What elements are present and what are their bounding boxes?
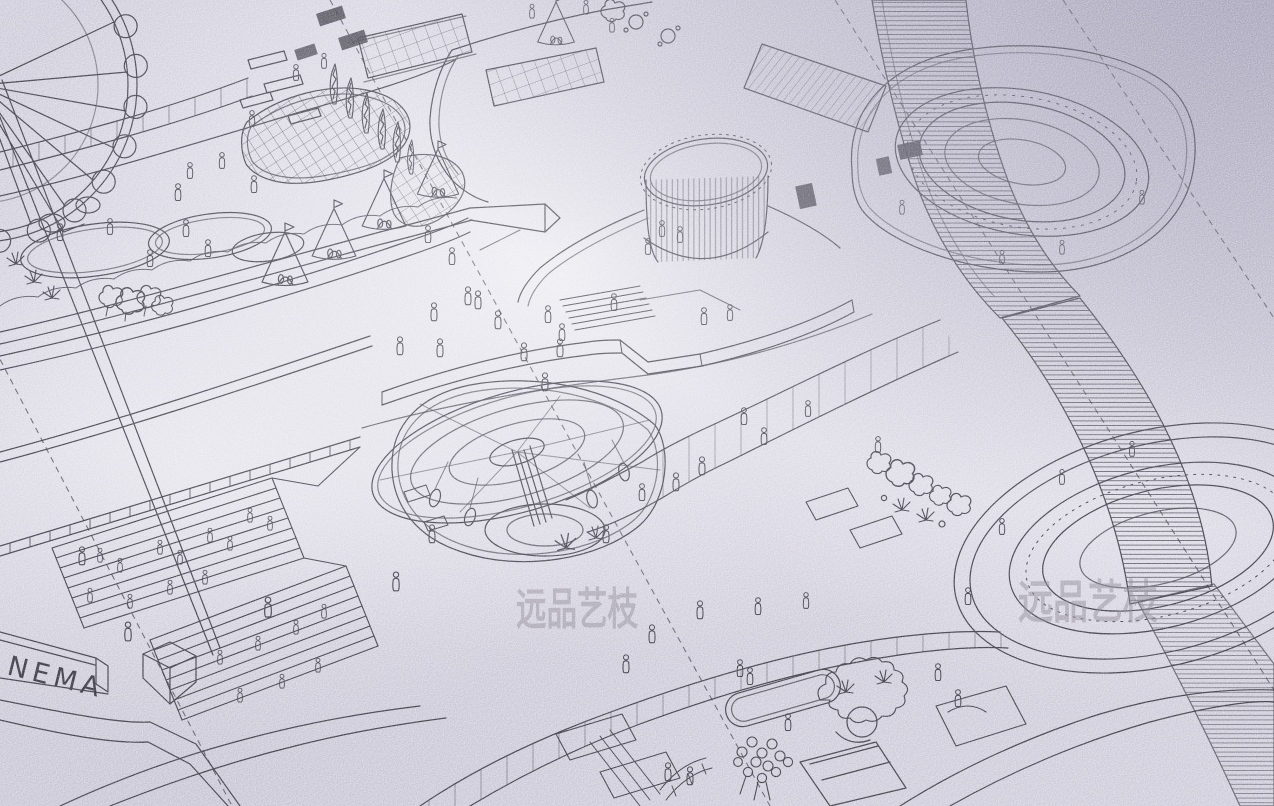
masterplan-illustration: NEMA xyxy=(0,0,1274,806)
photographed-drawing: NEMA xyxy=(0,0,1274,806)
photo-sheen xyxy=(0,0,1274,806)
